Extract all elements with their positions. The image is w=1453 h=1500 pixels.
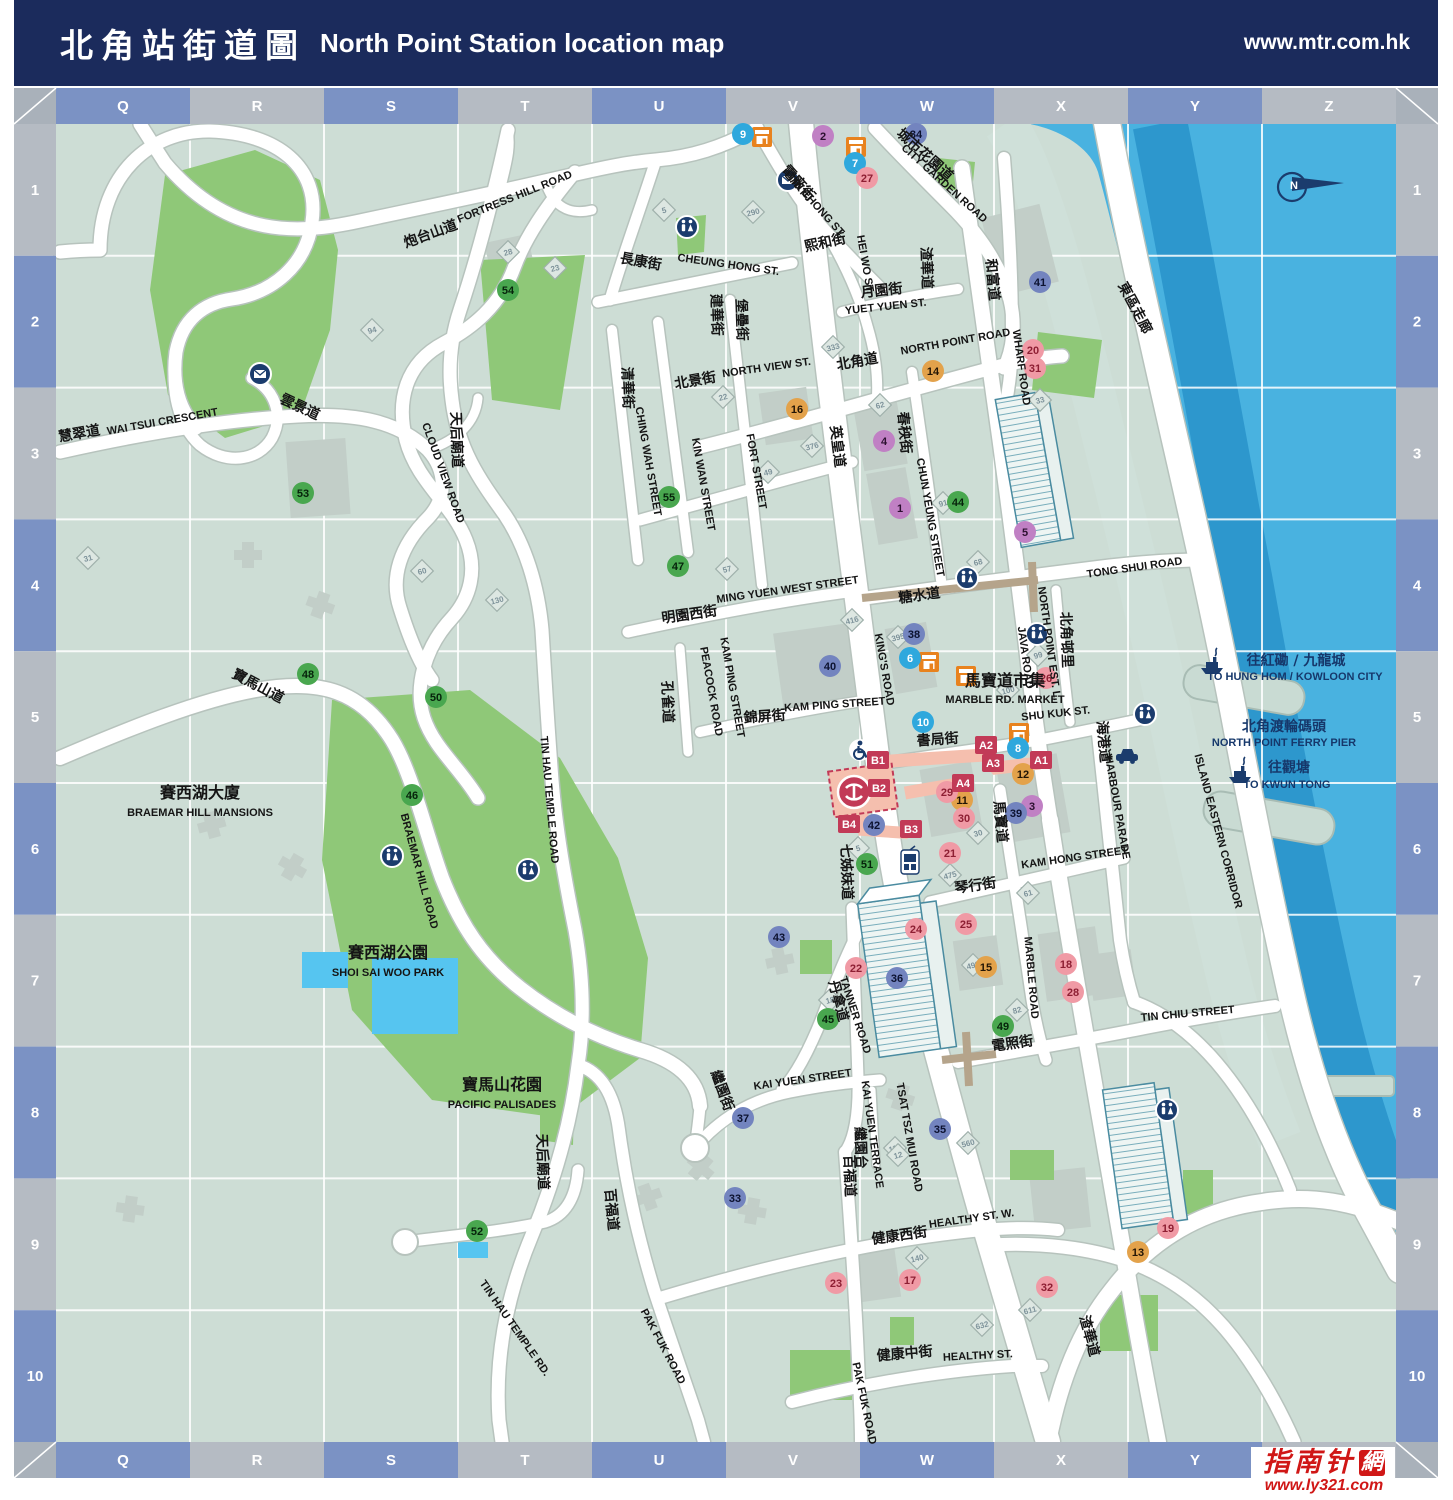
market-icon	[752, 127, 772, 147]
svg-text:29: 29	[941, 787, 953, 799]
logo-url: www.ly321.com	[1263, 1478, 1385, 1495]
exit-B3: B3	[900, 820, 922, 838]
svg-text:11: 11	[956, 795, 968, 807]
svg-text:8: 8	[1015, 743, 1021, 755]
poi-marker-52: 52	[466, 1220, 488, 1242]
page-title-zh: 北角站街道圖	[60, 19, 306, 67]
poi-marker-18: 18	[1055, 953, 1077, 975]
poi-marker-2: 2	[812, 125, 834, 147]
poi-marker-54: 54	[497, 279, 519, 301]
svg-text:X: X	[1056, 98, 1066, 115]
svg-text:B4: B4	[842, 819, 857, 831]
poi-marker-25: 25	[955, 913, 977, 935]
poi-marker-41: 41	[1029, 271, 1051, 293]
svg-text:30: 30	[958, 813, 970, 825]
poi-marker-10: 10	[912, 711, 934, 733]
poi-marker-16: 16	[786, 398, 808, 420]
svg-text:Q: Q	[117, 98, 129, 115]
poi-marker-38: 38	[903, 623, 925, 645]
poi-marker-32: 32	[1036, 1276, 1058, 1298]
svg-text:13: 13	[1132, 1247, 1144, 1259]
post-icon	[249, 363, 271, 385]
label: 馬寶道市集	[965, 671, 1046, 690]
poi-marker-35: 35	[929, 1118, 951, 1140]
svg-text:6: 6	[1413, 841, 1421, 858]
svg-text:43: 43	[773, 932, 785, 944]
wc-icon	[956, 567, 978, 589]
svg-text:5: 5	[1022, 527, 1028, 539]
label: 北角邨里	[1057, 612, 1076, 669]
svg-text:A3: A3	[986, 758, 1000, 770]
svg-text:19: 19	[1162, 1223, 1174, 1235]
label: SHOI SAI WOO PARK	[332, 967, 444, 979]
svg-text:3: 3	[1029, 801, 1035, 813]
svg-text:5: 5	[31, 709, 39, 726]
poi-marker-8: 8	[1007, 737, 1029, 759]
svg-text:Y: Y	[1190, 98, 1200, 115]
svg-text:48: 48	[302, 669, 314, 681]
wc-icon	[676, 216, 698, 238]
svg-text:R: R	[252, 98, 263, 115]
svg-text:7: 7	[1413, 973, 1421, 990]
svg-text:32: 32	[1041, 1282, 1053, 1294]
svg-text:A2: A2	[979, 740, 993, 752]
svg-text:35: 35	[934, 1124, 946, 1136]
mtr-icon	[838, 776, 870, 808]
svg-text:A4: A4	[956, 778, 971, 790]
svg-text:T: T	[520, 98, 529, 115]
svg-text:V: V	[788, 98, 798, 115]
header: 北角站街道圖 North Point Station location map …	[14, 0, 1438, 86]
svg-text:55: 55	[663, 492, 675, 504]
logo-seal: 網	[1359, 1450, 1385, 1475]
svg-text:54: 54	[502, 285, 515, 297]
svg-text:21: 21	[944, 848, 956, 860]
svg-text:15: 15	[980, 962, 992, 974]
svg-text:Z: Z	[1324, 98, 1333, 115]
mtr-url: www.mtr.com.hk	[1244, 31, 1410, 55]
svg-text:6: 6	[31, 841, 39, 858]
svg-text:22: 22	[850, 963, 862, 975]
svg-text:40: 40	[824, 661, 836, 673]
svg-text:49: 49	[997, 1021, 1009, 1033]
tram-icon	[901, 846, 919, 874]
svg-text:1: 1	[897, 503, 903, 515]
poi-marker-49: 49	[992, 1015, 1014, 1037]
svg-text:T: T	[520, 1452, 529, 1469]
svg-text:8: 8	[31, 1105, 39, 1122]
cul-de-sac	[392, 1229, 418, 1255]
svg-text:51: 51	[861, 859, 873, 871]
svg-text:1: 1	[31, 182, 39, 199]
poi-marker-1: 1	[889, 497, 911, 519]
svg-text:52: 52	[471, 1226, 483, 1238]
poi-marker-17: 17	[899, 1269, 921, 1291]
poi-marker-14: 14	[922, 360, 944, 382]
poi-marker-13: 13	[1127, 1241, 1149, 1263]
svg-text:W: W	[920, 98, 935, 115]
poi-marker-37: 37	[732, 1107, 754, 1129]
svg-text:37: 37	[737, 1113, 749, 1125]
poi-marker-46: 46	[401, 784, 423, 806]
poi-marker-15: 15	[975, 956, 997, 978]
label: 賽西湖大廈	[159, 783, 240, 802]
poi-marker-27: 27	[856, 167, 878, 189]
label: 錦屏街	[743, 707, 786, 727]
svg-text:2: 2	[820, 131, 826, 143]
poi-marker-28: 28	[1062, 981, 1084, 1003]
label: 繼園台	[851, 1127, 869, 1170]
poi-marker-5: 5	[1014, 521, 1036, 543]
label: 天后廟道	[533, 1134, 552, 1191]
exit-A3: A3	[982, 754, 1004, 772]
wc-icon	[381, 845, 403, 867]
poi-marker-19: 19	[1157, 1217, 1179, 1239]
north-point-station-map: QQRRSSTTUUVVWWXXYYZZ11223344556677889910…	[0, 0, 1453, 1500]
poi-marker-40: 40	[819, 655, 841, 677]
label: 北角渡輪碼頭	[1242, 718, 1327, 735]
cul-de-sac	[681, 1134, 709, 1162]
exit-B1: B1	[867, 751, 889, 769]
svg-text:9: 9	[31, 1236, 39, 1253]
svg-text:R: R	[252, 1452, 263, 1469]
svg-text:S: S	[386, 1452, 396, 1469]
svg-text:Y: Y	[1190, 1452, 1200, 1469]
label: NORTH POINT FERRY PIER	[1212, 737, 1356, 749]
label: 賽西湖公園	[347, 943, 428, 962]
label: 往紅磡 / 九龍城	[1247, 652, 1346, 669]
exit-A2: A2	[975, 736, 997, 754]
svg-text:27: 27	[861, 173, 873, 185]
label: MARBLE RD. MARKET	[945, 694, 1064, 706]
svg-text:25: 25	[960, 919, 972, 931]
svg-text:9: 9	[1413, 1236, 1421, 1253]
wc-icon	[1134, 703, 1156, 725]
svg-text:36: 36	[891, 973, 903, 985]
svg-text:17: 17	[904, 1275, 916, 1287]
poi-marker-42: 42	[863, 814, 885, 836]
svg-text:V: V	[788, 1452, 798, 1469]
svg-text:23: 23	[830, 1278, 842, 1290]
svg-text:5: 5	[1413, 709, 1421, 726]
map-canvas: QQRRSSTTUUVVWWXXYYZZ11223344556677889910…	[0, 0, 1453, 1500]
svg-text:46: 46	[406, 790, 418, 802]
label: 天后廟道	[447, 412, 466, 469]
svg-text:4: 4	[31, 577, 40, 594]
poi-marker-36: 36	[886, 967, 908, 989]
market-icon	[919, 652, 939, 672]
poi-marker-6: 6	[899, 647, 921, 669]
svg-text:31: 31	[1029, 363, 1041, 375]
svg-text:16: 16	[791, 404, 803, 416]
svg-text:47: 47	[672, 561, 684, 573]
svg-text:41: 41	[1034, 277, 1046, 289]
svg-text:18: 18	[1060, 959, 1072, 971]
exit-B2: B2	[868, 779, 890, 797]
label: 七姊妹道	[837, 844, 856, 901]
label: 孔雀道	[658, 681, 676, 724]
svg-text:33: 33	[729, 1193, 741, 1205]
svg-text:2: 2	[1413, 314, 1421, 331]
svg-text:45: 45	[822, 1014, 834, 1026]
svg-text:14: 14	[927, 366, 940, 378]
page-title-en: North Point Station location map	[320, 28, 724, 59]
label: 寶馬山花園	[462, 1075, 542, 1094]
svg-text:1: 1	[1413, 182, 1421, 199]
svg-text:28: 28	[1067, 987, 1079, 999]
poi-marker-23: 23	[825, 1272, 847, 1294]
label: 書局街	[916, 730, 959, 750]
svg-text:8: 8	[1413, 1105, 1421, 1122]
svg-text:53: 53	[297, 488, 309, 500]
poi-marker-53: 53	[292, 482, 314, 504]
svg-text:A1: A1	[1034, 755, 1048, 767]
poi-marker-48: 48	[297, 663, 319, 685]
poi-marker-50: 50	[425, 686, 447, 708]
poi-marker-51: 51	[856, 853, 878, 875]
svg-text:7: 7	[852, 158, 858, 170]
label: 清華街	[618, 367, 636, 410]
poi-marker-47: 47	[667, 555, 689, 577]
svg-text:U: U	[654, 1452, 665, 1469]
wc-icon	[517, 859, 539, 881]
svg-text:50: 50	[430, 692, 442, 704]
svg-text:Q: Q	[117, 1452, 129, 1469]
label: 堡壘街	[732, 299, 750, 342]
svg-text:6: 6	[907, 653, 913, 665]
svg-text:B2: B2	[872, 783, 886, 795]
poi-marker-24: 24	[905, 918, 927, 940]
poi-marker-44: 44	[947, 491, 969, 513]
svg-text:2: 2	[31, 314, 39, 331]
exit-B4: B4	[838, 815, 860, 833]
svg-text:44: 44	[952, 497, 965, 509]
wc-icon	[1156, 1099, 1178, 1121]
poi-marker-4: 4	[873, 430, 895, 452]
svg-text:39: 39	[1010, 808, 1022, 820]
ly321-logo: 指南针網 www.ly321.com	[1251, 1447, 1395, 1497]
svg-text:7: 7	[31, 973, 39, 990]
svg-text:42: 42	[868, 820, 880, 832]
label: TO HUNG HOM / KOWLOON CITY	[1207, 671, 1383, 683]
poi-marker-43: 43	[768, 926, 790, 948]
label: 渣華道	[917, 247, 935, 290]
svg-text:B3: B3	[904, 824, 918, 836]
poi-marker-33: 33	[724, 1187, 746, 1209]
svg-text:12: 12	[1017, 769, 1029, 781]
exit-A4: A4	[952, 774, 974, 792]
svg-text:10: 10	[917, 717, 929, 729]
svg-text:4: 4	[881, 436, 888, 448]
label: 建華街	[707, 294, 725, 337]
svg-text:3: 3	[1413, 446, 1421, 463]
svg-text:9: 9	[740, 129, 746, 141]
label: PACIFIC PALISADES	[448, 1099, 556, 1111]
logo-name: 指南针	[1263, 1449, 1356, 1477]
svg-text:W: W	[920, 1452, 935, 1469]
svg-text:24: 24	[910, 924, 923, 936]
svg-text:U: U	[654, 98, 665, 115]
exit-A1: A1	[1030, 751, 1052, 769]
poi-marker-30: 30	[953, 807, 975, 829]
label: BRAEMAR HILL MANSIONS	[127, 807, 273, 819]
poi-marker-21: 21	[939, 842, 961, 864]
svg-text:10: 10	[27, 1368, 44, 1385]
svg-text:38: 38	[908, 629, 920, 641]
svg-text:20: 20	[1027, 345, 1039, 357]
svg-text:S: S	[386, 98, 396, 115]
svg-text:4: 4	[1413, 577, 1422, 594]
svg-text:3: 3	[31, 446, 39, 463]
poi-marker-9: 9	[732, 123, 754, 145]
label: 往觀塘	[1268, 759, 1310, 776]
svg-text:X: X	[1056, 1452, 1066, 1469]
svg-text:10: 10	[1409, 1368, 1426, 1385]
svg-text:N: N	[1290, 180, 1298, 192]
svg-text:B1: B1	[871, 755, 885, 767]
label: TO KWUN TONG	[1244, 779, 1331, 791]
